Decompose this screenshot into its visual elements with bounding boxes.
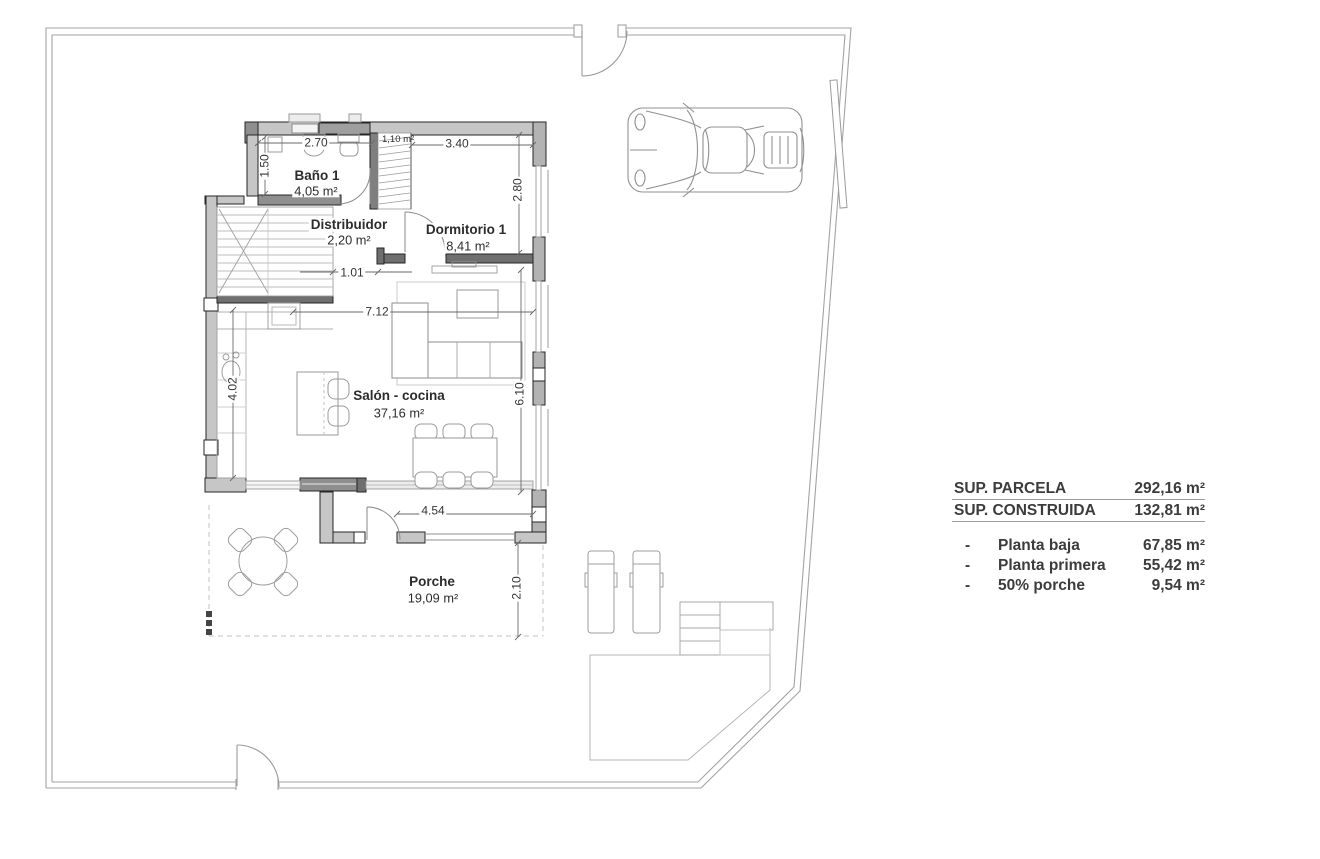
summary-label: Planta baja [981,537,1125,555]
dim-salon-depth: 6.10 [514,380,527,407]
summary-bullet: - [952,557,981,575]
dim-bano-width: 2.70 [302,137,329,150]
room-label-dormitorio: Dormitorio 1 [424,223,508,237]
summary-label: Planta primera [981,557,1125,575]
garden-steps [680,602,773,655]
dim-kitchen-depth: 4.02 [227,375,240,402]
dim-porche-depth: 2.10 [511,574,524,601]
summary-total-row: SUP. CONSTRUIDA 132,81 m² [952,500,1205,522]
summary-item-row: - Planta primera 55,42 m² [952,556,1205,576]
sun-lounger [630,551,663,633]
porch-table-set [226,526,300,598]
summary-value: 132,81 m² [1125,502,1205,520]
room-area-porche: 19,09 m² [406,591,461,604]
room-label-salon: Salón - cocina [351,389,447,403]
kitchen-table [297,372,349,435]
room-area-bano: 4,05 m² [292,184,339,197]
summary-value: 67,85 m² [1125,537,1205,555]
dim-dorm-depth: 2.80 [512,176,525,203]
summary-total-row: SUP. PARCELA 292,16 m² [952,478,1205,500]
summary-label: 50% porche [981,577,1125,595]
summary-label: SUP. PARCELA [952,480,1066,498]
room-label-bano: Baño 1 [292,169,341,183]
room-area-dormitorio: 8,41 m² [444,239,491,252]
room-label-porche: Porche [407,575,457,589]
room-area-salon: 37,16 m² [372,406,427,419]
pedestrian-gate-bottom [237,745,279,787]
car-top-view [628,103,804,197]
sideboard [432,262,497,273]
dim-dorm-width: 3.40 [443,138,470,151]
floor-plan-drawing [0,0,1320,859]
porch-bollards [206,611,212,635]
dim-salon-width: 7.12 [363,306,390,319]
summary-bullet: - [952,537,981,555]
closet-area-label: 1,10 m² [382,134,414,145]
surface-summary: SUP. PARCELA 292,16 m² SUP. CONSTRUIDA 1… [952,478,1205,596]
room-area-distribuidor: 2,20 m² [325,233,372,246]
summary-value: 9,54 m² [1125,577,1205,595]
summary-value: 55,42 m² [1125,557,1205,575]
house-walls [204,114,546,543]
summary-item-row: - 50% porche 9,54 m² [952,576,1205,596]
dim-hall-width: 1.01 [338,267,365,280]
summary-label: SUP. CONSTRUIDA [952,502,1096,520]
dim-bano-depth: 1.50 [259,152,272,179]
floor-plan-page: Baño 1 4,05 m² Distribuidor 2,20 m² Dorm… [0,0,1320,859]
dim-porche-width: 4.54 [419,505,446,518]
summary-bullet: - [952,577,981,595]
sun-lounger [585,551,617,633]
summary-item-row: - Planta baja 67,85 m² [952,536,1205,556]
coffee-table [457,290,498,318]
summary-value: 292,16 m² [1125,480,1205,498]
pedestrian-gate-top [582,31,627,76]
porch-dashed-outline [209,505,543,636]
dining-table-set [413,424,497,488]
room-label-distribuidor: Distribuidor [309,218,390,232]
